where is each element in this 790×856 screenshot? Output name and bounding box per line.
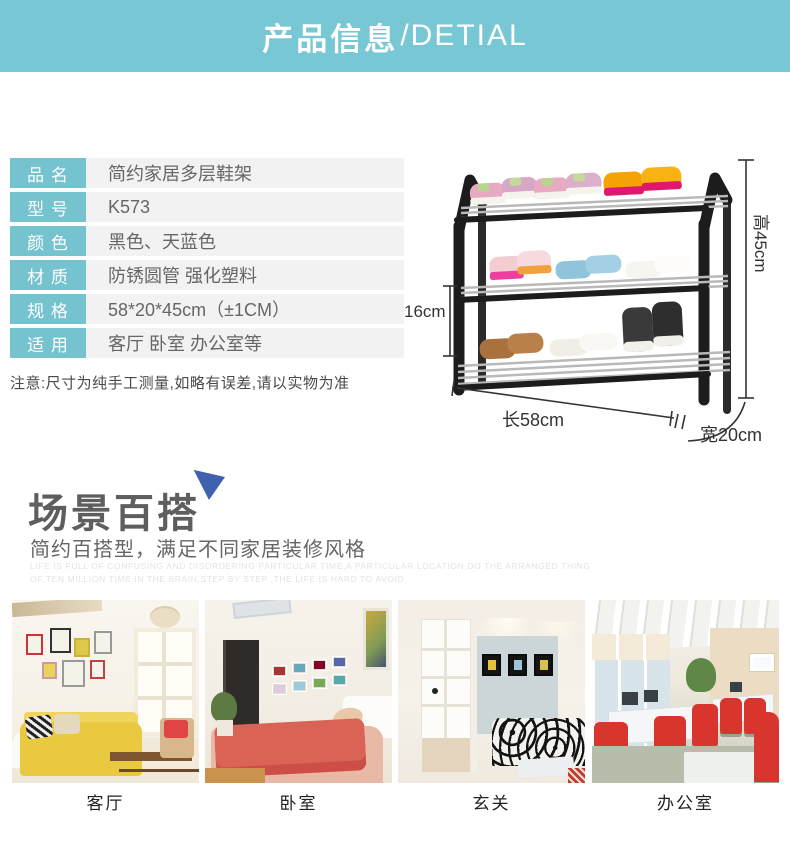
spec-value: 黑色、天蓝色 [86,226,404,256]
header-banner: 产品信息 /DETIAL [0,0,790,72]
scene-label-bedroom: 卧室 [205,789,392,814]
dimension-height-label: 高45cm [750,214,775,273]
page-title-zh: 产品信息 [262,14,398,59]
scene-section-subtitle: 简约百搭型，满足不同家居装修风格 [30,533,366,562]
bottom-shelf-shoes [478,301,684,361]
scene-photo-bedroom [205,600,392,783]
spec-value: 简约家居多层鞋架 [86,158,404,188]
spec-label: 适 用 [10,328,86,358]
spec-row-material: 材 质 防锈圆管 强化塑料 [10,260,404,290]
spec-label: 型 号 [10,192,86,222]
page-title-en: /DETIAL [400,19,527,53]
product-detail-page: 产品信息 /DETIAL 品 名 简约家居多层鞋架 型 号 K573 颜 色 黑… [0,0,790,856]
spec-value: K573 [86,192,404,222]
scene-photo-living-room [12,600,199,783]
spec-value: 客厅 卧室 办公室等 [86,328,404,358]
spec-value: 58*20*45cm（±1CM） [86,294,404,324]
scene-label-entryway: 玄关 [398,789,585,814]
watermark-text-line1: LIFE IS FULL OF CONFUSING AND DISORDERIN… [30,561,591,571]
measure-note: 注意:尺寸为纯手工测量,如略有误差,请以实物为准 [10,372,350,393]
spec-label: 颜 色 [10,226,86,256]
dimension-width-label: 宽20cm [700,421,762,447]
shoe-rack-illustration [398,138,790,456]
spec-value: 防锈圆管 强化塑料 [86,260,404,290]
dimension-length-label: 长58cm [502,406,564,432]
spec-row-name: 品 名 简约家居多层鞋架 [10,158,404,188]
spec-label: 规 格 [10,294,86,324]
spec-row-usage: 适 用 客厅 卧室 办公室等 [10,328,404,358]
spec-row-color: 颜 色 黑色、天蓝色 [10,226,404,256]
scene-label-living-room: 客厅 [12,789,199,814]
spec-row-size: 规 格 58*20*45cm（±1CM） [10,294,404,324]
scene-section-title: 场景百搭 [28,481,200,539]
scene-label-office: 办公室 [592,789,779,814]
watermark-text-line2: OF TEN MILLION TIME IN THE BRAIN,STEP BY… [30,574,404,584]
dimension-tier-label: 16cm [404,302,446,322]
shoe-rack-figure [398,138,790,456]
scene-photo-entryway [398,600,585,783]
spec-label: 材 质 [10,260,86,290]
spec-label: 品 名 [10,158,86,188]
scene-photo-office [592,600,779,783]
spec-row-model: 型 号 K573 [10,192,404,222]
